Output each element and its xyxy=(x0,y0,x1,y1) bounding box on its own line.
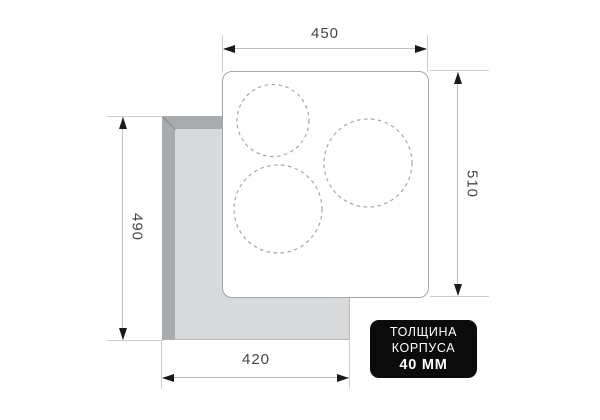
badge-line-2: КОРПУСА xyxy=(392,340,455,356)
arrowhead-down-icon xyxy=(454,284,462,296)
housing-thickness-badge: ТОЛЩИНА КОРПУСА 40 ММ xyxy=(370,320,477,378)
dim-value-left: 490 xyxy=(129,213,146,241)
extension-line xyxy=(430,70,489,71)
arrowhead-right-icon xyxy=(415,45,427,53)
diagram-canvas: 450 510 490 420 ТОЛЩИНА КОРПУСА 40 ММ xyxy=(0,0,600,420)
dimension-line xyxy=(163,377,349,378)
extension-line xyxy=(107,116,163,117)
extension-line xyxy=(430,296,489,297)
dim-value-bottom: 420 xyxy=(162,351,350,368)
dimension-line xyxy=(457,72,458,295)
badge-line-3: 40 ММ xyxy=(399,356,447,374)
arrowhead-left-icon xyxy=(223,45,235,53)
burner-bottom-left-icon xyxy=(234,165,322,253)
burner-right-icon xyxy=(324,119,412,207)
arrowhead-up-icon xyxy=(119,117,127,129)
dim-value-right: 510 xyxy=(464,170,481,198)
badge-line-1: ТОЛЩИНА xyxy=(390,324,457,340)
burner-zones xyxy=(223,72,428,297)
cutout-bevel-line xyxy=(162,116,178,132)
extension-line xyxy=(107,340,163,341)
arrowhead-up-icon xyxy=(454,72,462,84)
dimension-line xyxy=(122,117,123,340)
arrowhead-down-icon xyxy=(119,328,127,340)
arrowhead-right-icon xyxy=(337,374,349,382)
cooktop-panel xyxy=(222,71,429,298)
arrowhead-left-icon xyxy=(162,374,174,382)
burner-top-left-icon xyxy=(237,85,309,157)
dimension-line xyxy=(224,48,426,49)
dim-value-top: 450 xyxy=(222,25,428,42)
